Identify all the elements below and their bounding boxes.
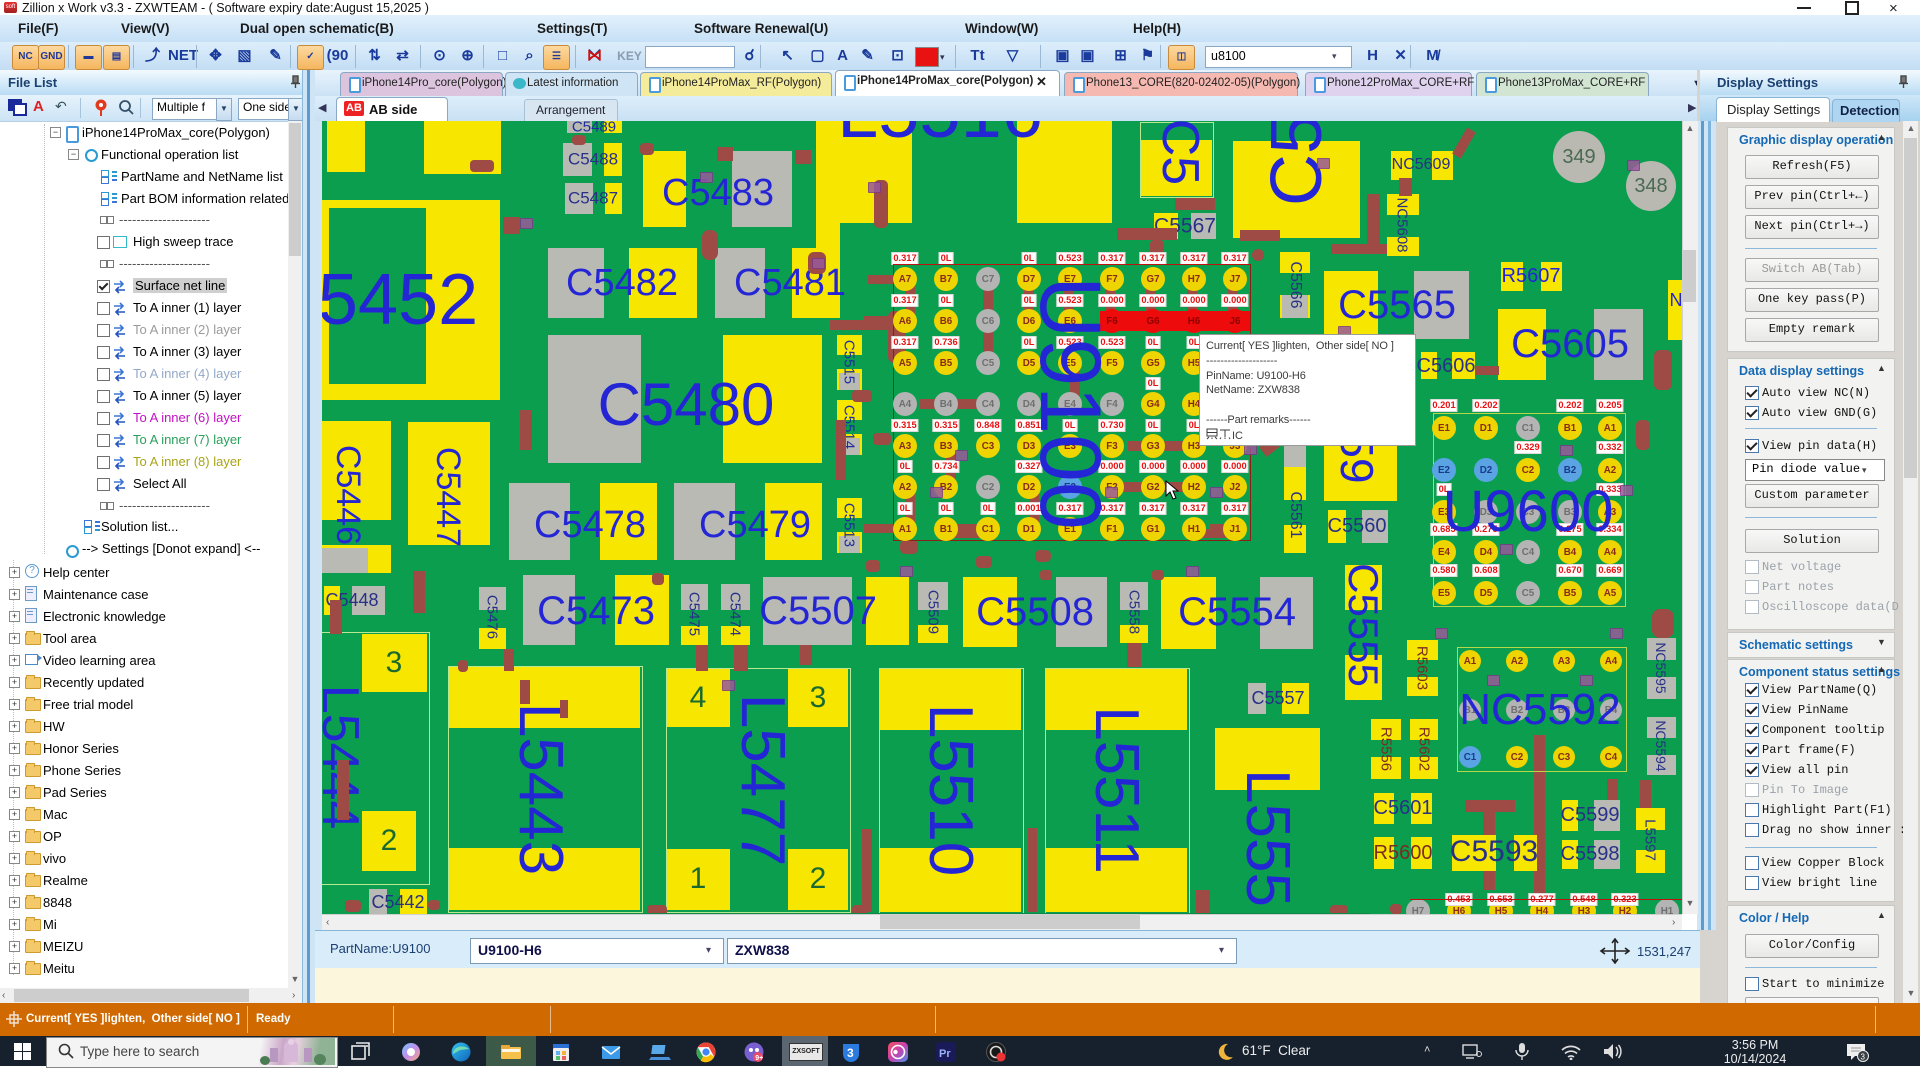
svg-text:9+: 9+ <box>755 1055 763 1062</box>
svg-text:3: 3 <box>847 1046 854 1060</box>
svg-text:3: 3 <box>1861 1053 1866 1062</box>
svg-text:Pr: Pr <box>939 1048 951 1060</box>
